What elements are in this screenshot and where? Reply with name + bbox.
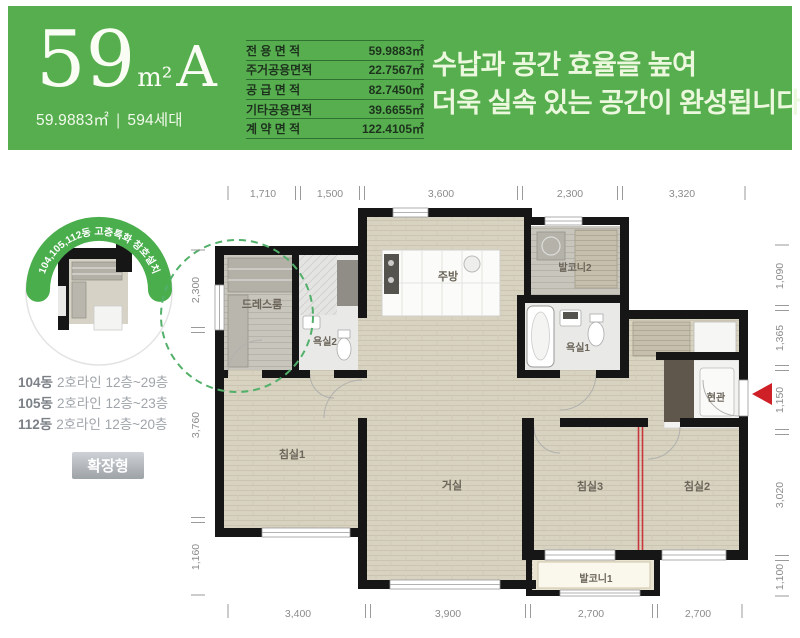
room-label-entrance: 현관: [707, 391, 726, 404]
dim-left: 1,160: [190, 544, 202, 570]
dim-right: 1,090: [774, 263, 786, 289]
dim-top: 2,300: [557, 188, 583, 200]
dim-bottom: 3,900: [435, 608, 461, 620]
dim-right: 3,020: [774, 482, 786, 508]
dim-right: 1,100: [774, 564, 786, 590]
dim-right: 1,150: [774, 387, 786, 413]
room-label-bedroom1: 침실1: [279, 447, 305, 461]
dim-left: 2,300: [190, 277, 202, 303]
room-label-balcony2: 발코니2: [558, 261, 592, 274]
dim-top: 3,600: [428, 188, 454, 200]
floorplan-page: 59 m² A 59.9883㎡|594세대 전 용 면 적 59.9883㎡ …: [0, 0, 800, 638]
room-label-dressroom: 드레스룸: [242, 297, 282, 311]
dim-top: 1,500: [317, 188, 343, 200]
dim-left: 3,760: [190, 412, 202, 438]
room-label-bath1: 욕실1: [566, 341, 590, 354]
room-label-balcony1: 발코니1: [579, 572, 613, 585]
room-label-bedroom3: 침실3: [577, 479, 603, 493]
dim-bottom: 2,700: [685, 608, 711, 620]
dim-bottom: 3,400: [285, 608, 311, 620]
dim-bottom: 2,700: [578, 608, 604, 620]
room-label-bath2: 욕실2: [313, 335, 337, 348]
room-label-kitchen: 주방: [438, 269, 458, 283]
entrance-arrow-icon: [752, 383, 772, 405]
room-label-bedroom2: 침실2: [684, 479, 710, 493]
kitchen-counter: [382, 250, 500, 316]
floor-plan: 드레스룸 욕실2 주방 발코니2 욕실1 현관 침실1 거실 침실3 침실2 발…: [0, 0, 800, 638]
room-label-living: 거실: [442, 478, 462, 492]
dim-top: 3,320: [669, 188, 695, 200]
dim-right: 1,365: [774, 325, 786, 351]
dim-top: 1,710: [250, 188, 276, 200]
